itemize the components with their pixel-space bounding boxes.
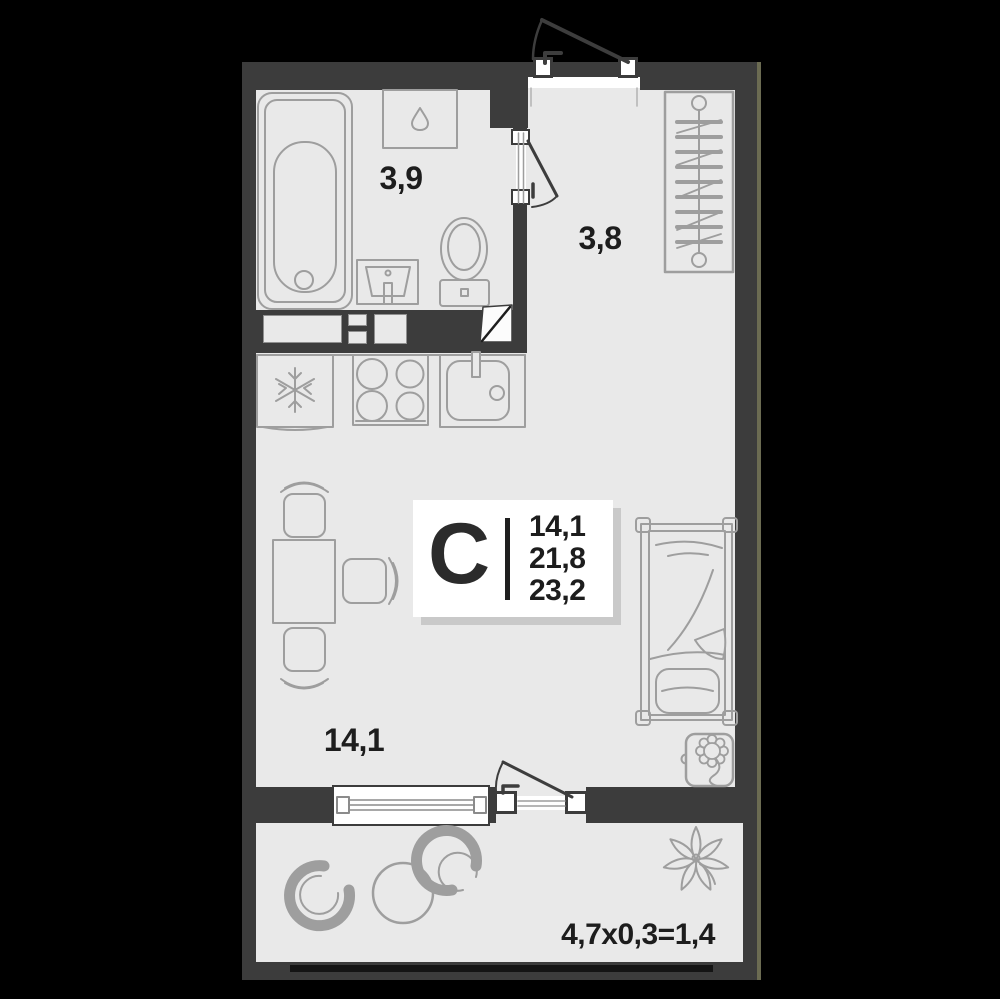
balcony-door-frame-left [494, 791, 517, 814]
wall-right-upper [735, 62, 757, 823]
room-label-bathroom: 3,9 [351, 160, 451, 197]
balcony-door-sill [517, 796, 566, 810]
unit-area-main: 21,8 [529, 543, 585, 575]
unit-areas: 14,1 21,8 23,2 [529, 511, 585, 607]
unit-info-card: С 14,1 21,8 23,2 [413, 500, 613, 617]
wall-bottom-right [590, 787, 757, 823]
wall-top-left [242, 62, 528, 90]
wall-bottom-left [242, 787, 332, 823]
window [332, 785, 490, 826]
floor-plan: 3,9 3,8 14,1 4,7x0,3=1,4 С 14,1 21,8 23,… [0, 0, 1000, 999]
card-divider [505, 518, 510, 600]
wall-bath-partition-top [513, 77, 527, 132]
wall-left [242, 62, 256, 980]
room-label-hallway: 3,8 [550, 220, 650, 257]
balcony-door-frame-right [565, 791, 588, 814]
vent-shaft [263, 315, 342, 343]
vent-shaft [348, 314, 367, 326]
vent-shaft [374, 314, 407, 344]
unit-type-letter: С [413, 511, 505, 597]
balcony-railing [290, 965, 713, 972]
plan-edge-accent [757, 62, 761, 980]
entrance-door-frame-left [533, 57, 553, 78]
entrance-door-frame-right [618, 57, 638, 78]
unit-area-total: 23,2 [529, 575, 585, 607]
bathroom-door-frame-bottom [511, 189, 530, 205]
room-label-balcony: 4,7x0,3=1,4 [528, 918, 748, 952]
bathroom-door-frame-top [511, 129, 530, 145]
room-label-living: 14,1 [304, 722, 404, 759]
wall-right-balcony [743, 823, 757, 980]
vent-shaft [348, 331, 367, 344]
unit-area-living: 14,1 [529, 511, 585, 543]
entrance-threshold [528, 77, 640, 88]
